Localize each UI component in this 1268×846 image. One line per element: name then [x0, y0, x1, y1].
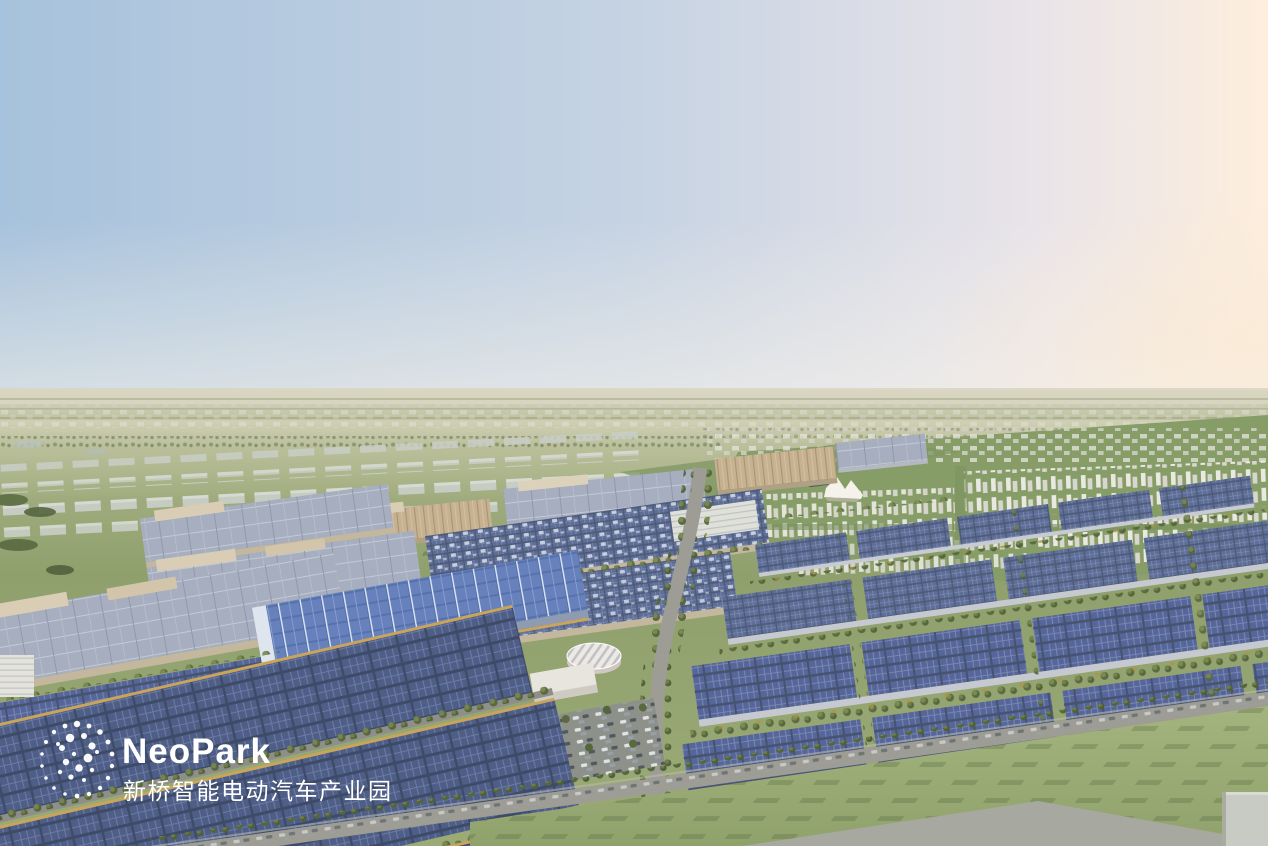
brand-wordmark: NeoPark — [122, 732, 271, 771]
neopark-scene: NeoPark 新桥智能电动汽车产业园 — [0, 0, 1268, 846]
flat-roof-slab — [1222, 792, 1268, 846]
hedgerow-line — [0, 398, 1268, 400]
white-building-windows — [0, 655, 34, 697]
slab-top-edge — [1222, 792, 1268, 795]
brand-subtitle: 新桥智能电动汽车产业园 — [123, 778, 393, 804]
horizon-haze — [0, 388, 1268, 404]
slab-side-face — [1222, 792, 1226, 846]
aerial-rendering: NeoPark 新桥智能电动汽车产业园 — [0, 0, 1268, 846]
